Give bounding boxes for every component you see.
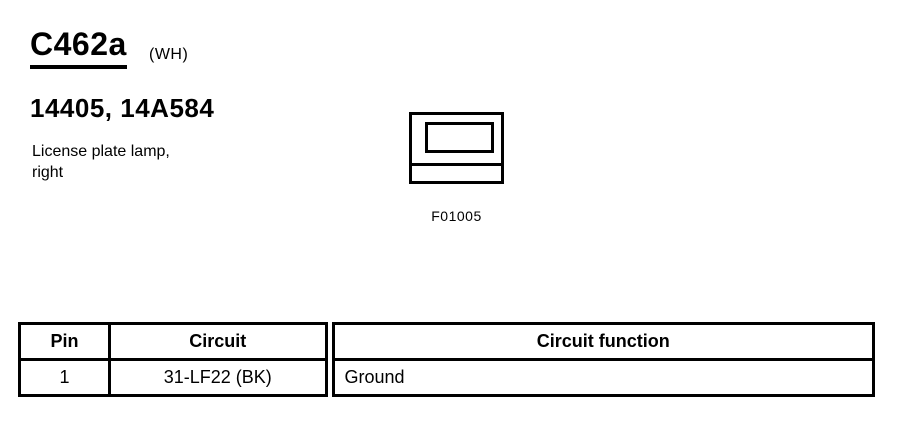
connector-cavity-icon bbox=[425, 122, 494, 153]
circuit-column-header: Circuit bbox=[110, 324, 330, 360]
circuit-function-column-header: Circuit function bbox=[330, 324, 874, 360]
pin-table-row: 1 31-LF22 (BK) Ground bbox=[20, 360, 874, 396]
connector-id: C462a bbox=[30, 28, 127, 69]
connector-color-code: (WH) bbox=[149, 46, 188, 64]
connector-description: License plate lamp, right bbox=[32, 141, 170, 183]
circuit-cell: 31-LF22 (BK) bbox=[110, 360, 330, 396]
description-line-1: License plate lamp, bbox=[32, 141, 170, 162]
description-line-2: right bbox=[32, 162, 170, 183]
pin-table: Pin Circuit Circuit function 1 31-LF22 (… bbox=[18, 322, 875, 397]
pin-table-header-row: Pin Circuit Circuit function bbox=[20, 324, 874, 360]
pin-number-cell: 1 bbox=[20, 360, 110, 396]
part-numbers: 14405, 14A584 bbox=[30, 93, 214, 124]
figure-label: F01005 bbox=[409, 208, 504, 224]
circuit-function-cell: Ground bbox=[330, 360, 874, 396]
connector-face-icon bbox=[409, 112, 504, 184]
pin-column-header: Pin bbox=[20, 324, 110, 360]
connector-base-line bbox=[411, 163, 502, 166]
connector-spec-page: C462a (WH) 14405, 14A584 License plate l… bbox=[0, 0, 902, 432]
